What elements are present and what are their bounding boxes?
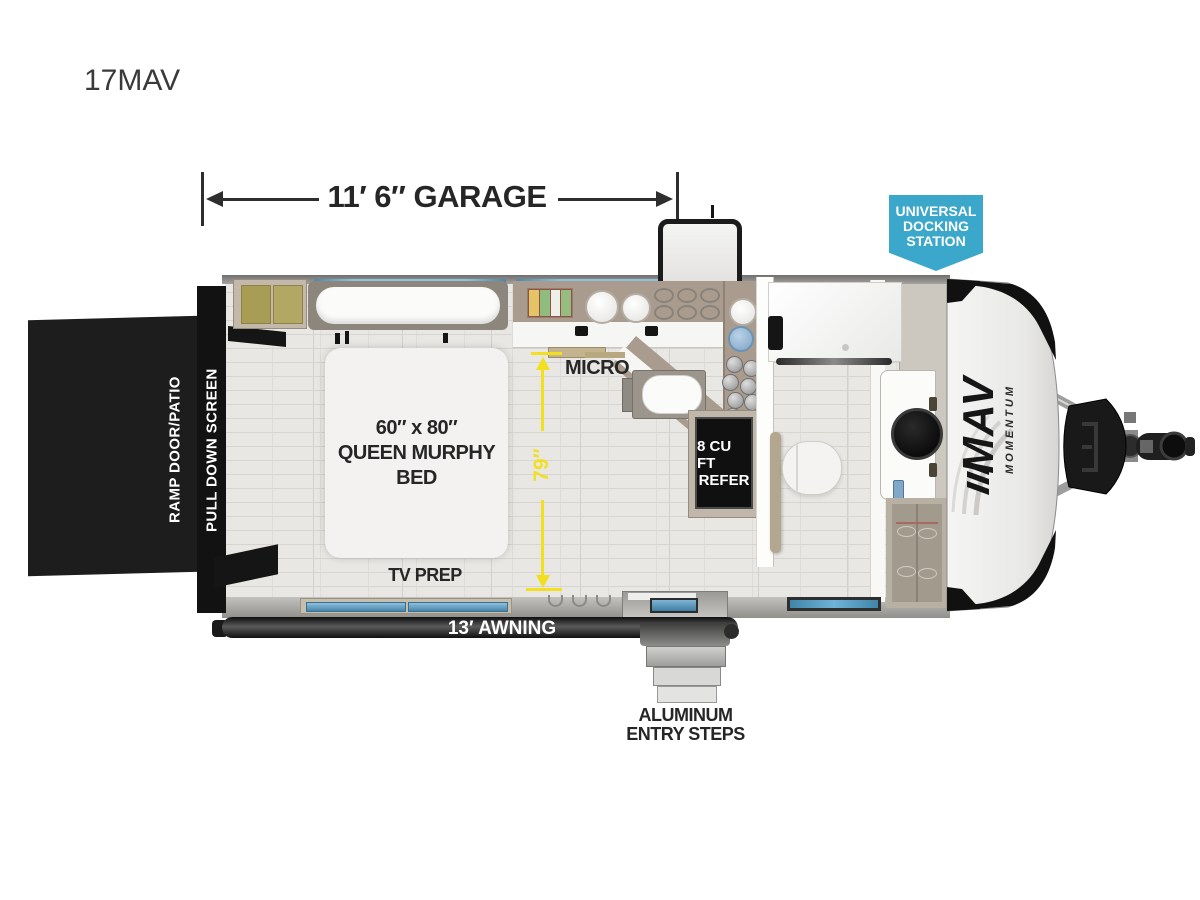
hanger — [897, 526, 916, 537]
pull-down-screen-label: PULL DOWN SCREEN — [199, 330, 225, 570]
coupler-detail — [1140, 440, 1153, 453]
garage-dim-tick-left — [201, 172, 204, 226]
faucet-mark — [645, 326, 658, 336]
cabinet-panel-left — [241, 285, 271, 324]
bed-label: BED — [396, 467, 437, 490]
cutting-boards — [527, 288, 573, 318]
height-dim-tick-top — [531, 352, 562, 355]
toilet — [782, 441, 842, 495]
step-hinge — [724, 624, 739, 639]
entry-step-1 — [640, 622, 730, 646]
hanger — [897, 566, 916, 577]
hanging-clothes-line — [896, 522, 938, 524]
queen-murphy-bed: 60″ x 80″ QUEEN MURPHY BED — [325, 348, 508, 558]
tv-prep-label: TV PREP — [350, 565, 500, 586]
bed-size-label: 60″ x 80″ — [376, 417, 457, 440]
blue-basin — [728, 326, 754, 352]
jack-knob — [1124, 412, 1136, 423]
window-pane — [306, 602, 406, 612]
logo-subtext: MOMENTUM — [1004, 384, 1016, 474]
garage-dim-label: 11′ 6″ GARAGE — [317, 179, 557, 215]
cup-holder — [727, 392, 744, 409]
bottle-detail — [893, 480, 904, 500]
cutting-board-green-2 — [561, 290, 571, 316]
wardrobe-pole — [916, 504, 918, 602]
cutting-board-yellow — [529, 290, 539, 316]
pedestal-table-top — [642, 375, 702, 414]
badge-line-1: UNIVERSAL — [889, 204, 983, 219]
entry-step-3 — [653, 667, 721, 686]
exterior-table-latch — [711, 205, 714, 218]
sofa-cushion — [316, 287, 500, 324]
height-dim-tick-bottom — [526, 588, 562, 591]
cup-holder — [726, 356, 743, 373]
front-cap-and-hitch: MAV MOMENTUM — [938, 268, 1200, 622]
bathroom-door — [770, 432, 781, 553]
shower-threshold-bar — [776, 358, 892, 365]
cutting-board-white — [551, 290, 561, 316]
garage-dim-line-right — [558, 198, 658, 201]
shower-faucet — [768, 316, 783, 350]
height-dim-arrowhead-bottom — [536, 575, 550, 588]
height-dim-line-lower — [541, 500, 544, 576]
cup-holder — [740, 378, 757, 395]
docking-station-unit — [880, 370, 936, 500]
coupler-end — [1185, 437, 1195, 456]
micro-label: MICRO — [565, 357, 629, 380]
burner — [700, 305, 720, 320]
steps-label-2: ENTRY STEPS — [618, 725, 753, 744]
cabinet-panel-right — [273, 285, 303, 324]
right-window-pane — [790, 600, 878, 608]
hardware-nub — [929, 397, 937, 411]
window-pane — [408, 602, 508, 612]
door-window — [650, 598, 698, 613]
bracket-mark — [345, 331, 349, 344]
height-dim-label: 79″ — [512, 435, 572, 495]
faucet-mark — [575, 326, 588, 336]
garage-dim-tick-right — [676, 172, 679, 226]
entry-step-2 — [646, 646, 726, 667]
entry-step-4 — [657, 686, 717, 703]
burner — [677, 288, 697, 303]
garage-dim-arrowhead-right — [656, 191, 673, 207]
shower-pan — [768, 282, 902, 362]
steps-label-1: ALUMINUM — [618, 706, 753, 725]
badge-line-3: STATION — [889, 234, 983, 249]
entry-door — [622, 591, 728, 618]
shower-drain — [842, 344, 849, 351]
burner — [677, 305, 697, 320]
overhead-cabinet — [233, 279, 307, 329]
height-dim-line-upper — [541, 369, 544, 431]
burner — [700, 288, 720, 303]
logo-text: MAV — [954, 374, 1003, 474]
docking-port — [891, 408, 943, 460]
cutting-board-green — [540, 290, 550, 316]
bracket-mark — [335, 333, 340, 344]
fridge-label-1: 8 CU FT — [697, 438, 751, 472]
cup-holder — [722, 374, 739, 391]
bed-type-label: QUEEN MURPHY — [338, 442, 495, 465]
burner — [654, 288, 674, 303]
hardware-nub — [929, 463, 937, 477]
bar-sink — [729, 298, 757, 326]
refrigerator: 8 CU FT REFER — [695, 417, 753, 509]
bracket-mark — [443, 333, 448, 343]
garage-dim-line-left — [221, 198, 319, 201]
toilet-seat-line — [796, 445, 798, 491]
fridge-label-2: REFER — [699, 472, 750, 489]
burner — [654, 305, 674, 320]
hanger — [918, 568, 937, 579]
kitchen-sink-small — [621, 293, 651, 323]
right-window-frame — [787, 597, 881, 611]
entry-steps-label: ALUMINUM ENTRY STEPS — [618, 706, 753, 744]
model-title: 17MAV — [84, 64, 180, 98]
universal-docking-station-badge: UNIVERSAL DOCKING STATION — [889, 195, 983, 271]
coupler-latch — [1161, 433, 1187, 459]
badge-line-2: DOCKING — [889, 219, 983, 234]
kitchen-sink-large — [585, 290, 619, 324]
cooktop — [654, 286, 724, 320]
floorplan-canvas: 17MAV 11′ 6″ GARAGE UNIVERSAL DOCKING ST… — [0, 0, 1200, 900]
hanger — [918, 528, 937, 539]
bottom-window-frame — [300, 598, 512, 614]
ramp-door-label: RAMP DOOR/PATIO — [162, 335, 188, 565]
